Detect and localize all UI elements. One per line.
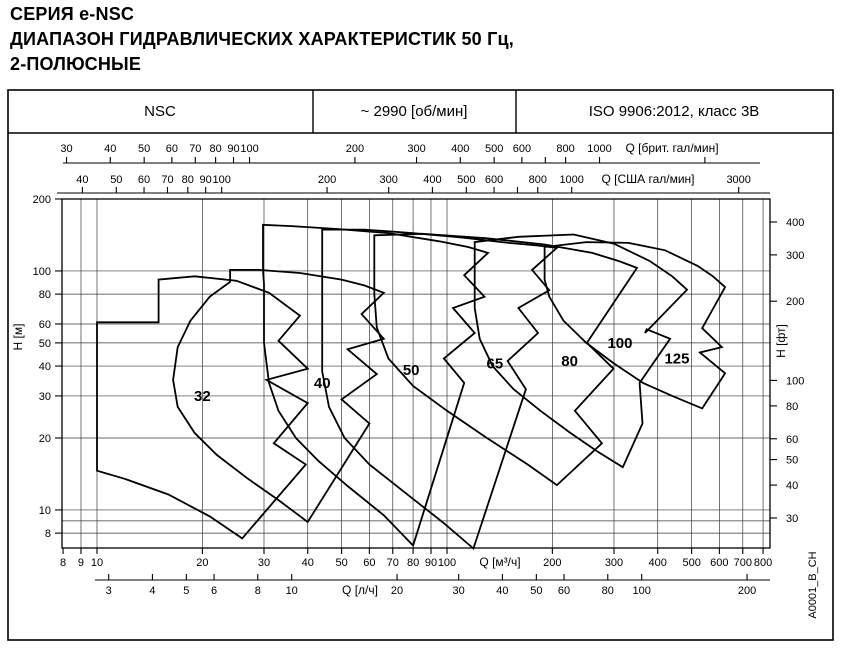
hydraulic-range-chart: NSC ~ 2990 [об/мин] ISO 9906:2012, класс…	[0, 0, 841, 648]
ls-tick-label: 3	[106, 585, 112, 597]
h-m-tick-label: 30	[39, 391, 51, 403]
us-gpm-tick-label: 500	[457, 174, 475, 186]
imp-gpm-tick-label: 300	[407, 143, 425, 155]
us-gpm-tick-label: 1000	[559, 174, 583, 186]
pump-range-label-100: 100	[607, 335, 632, 352]
m3h-tick-label: 80	[407, 557, 419, 569]
imp-gpm-tick-label: 60	[166, 143, 178, 155]
h-ft-tick-label: 50	[786, 455, 798, 467]
m3h-tick-label: 90	[425, 557, 437, 569]
ls-tick-label: 8	[255, 585, 261, 597]
ls-tick-label: 6	[211, 585, 217, 597]
ls-axis-title: Q [л/ч]	[342, 583, 378, 597]
us-gpm-tick-label: 800	[529, 174, 547, 186]
m3h-tick-label: 20	[196, 557, 208, 569]
pump-range-label-80: 80	[561, 353, 578, 370]
us-gpm-tick-label: 60	[138, 174, 150, 186]
imp-gpm-tick-label: 90	[227, 143, 239, 155]
imp-gpm-tick-label: 800	[556, 143, 574, 155]
h-m-tick-label: 60	[39, 319, 51, 331]
m3h-tick-label: 70	[387, 557, 399, 569]
h-ft-tick-label: 400	[786, 217, 804, 229]
ls-tick-label: 10	[286, 585, 298, 597]
m3h-tick-label: 700	[734, 557, 752, 569]
drawing-code-note: A0001_B_CH	[807, 551, 819, 618]
ls-tick-label: 20	[391, 585, 403, 597]
h-ft-tick-label: 300	[786, 250, 804, 262]
us-gpm-tick-label: 70	[161, 174, 173, 186]
header-series: NSC	[144, 103, 176, 120]
us-gpm-tick-label: 200	[318, 174, 336, 186]
header-speed: ~ 2990 [об/мин]	[361, 103, 468, 120]
imp-gpm-tick-label: 50	[138, 143, 150, 155]
imp-gpm-tick-label: 400	[451, 143, 469, 155]
imp-gpm-tick-label: 80	[209, 143, 221, 155]
h-m-tick-label: 50	[39, 338, 51, 350]
us-gpm-tick-label: 400	[423, 174, 441, 186]
pump-range-100	[475, 235, 687, 468]
imp-gpm-tick-label: 500	[485, 143, 503, 155]
left-axis-title: H [м]	[11, 324, 25, 351]
m3h-tick-label: 500	[682, 557, 700, 569]
h-m-tick-label: 200	[33, 194, 51, 206]
h-ft-tick-label: 80	[786, 401, 798, 413]
imp-gpm-tick-label: 40	[104, 143, 116, 155]
imp-gpm-axis-title: Q [брит. гал/мин]	[625, 141, 718, 155]
us-gpm-tick-label: 3000	[726, 174, 750, 186]
ls-tick-label: 4	[149, 585, 155, 597]
m3h-tick-label: 40	[302, 557, 314, 569]
h-ft-tick-label: 30	[786, 513, 798, 525]
us-gpm-tick-label: 50	[110, 174, 122, 186]
h-ft-tick-label: 100	[786, 375, 804, 387]
us-gpm-axis-title: Q [США гал/мин]	[601, 172, 694, 186]
ls-tick-label: 80	[602, 585, 614, 597]
m3h-axis-title: Q [м³/ч]	[479, 555, 520, 569]
m3h-tick-label: 400	[649, 557, 667, 569]
m3h-tick-label: 300	[605, 557, 623, 569]
m3h-tick-label: 8	[60, 557, 66, 569]
imp-gpm-tick-label: 1000	[587, 143, 611, 155]
h-ft-tick-label: 60	[786, 434, 798, 446]
m3h-tick-label: 60	[363, 557, 375, 569]
ls-tick-label: 5	[183, 585, 189, 597]
h-ft-tick-label: 40	[786, 480, 798, 492]
ls-tick-label: 30	[453, 585, 465, 597]
ls-tick-label: 60	[558, 585, 570, 597]
m3h-tick-label: 600	[710, 557, 728, 569]
ls-tick-label: 50	[530, 585, 542, 597]
us-gpm-tick-label: 100	[213, 174, 231, 186]
h-m-tick-label: 100	[33, 266, 51, 278]
imp-gpm-tick-label: 70	[189, 143, 201, 155]
page: СЕРИЯ e-NSC ДИАПАЗОН ГИДРАВЛИЧЕСКИХ ХАРА…	[0, 0, 841, 648]
title-line-1: СЕРИЯ e-NSC	[10, 2, 514, 27]
m3h-tick-label: 10	[91, 557, 103, 569]
h-m-tick-label: 8	[45, 528, 51, 540]
us-gpm-tick-label: 300	[380, 174, 398, 186]
h-m-tick-label: 40	[39, 361, 51, 373]
pump-range-label-125: 125	[664, 351, 689, 368]
h-ft-tick-label: 200	[786, 296, 804, 308]
imp-gpm-tick-label: 200	[346, 143, 364, 155]
m3h-tick-label: 9	[78, 557, 84, 569]
imp-gpm-tick-label: 100	[240, 143, 258, 155]
pump-range-80	[374, 234, 637, 485]
title-line-3: 2-ПОЛЮСНЫЕ	[10, 52, 514, 77]
us-gpm-tick-label: 600	[485, 174, 503, 186]
chart-generated: 304050607080901002003004005006008001000Q…	[33, 141, 805, 597]
m3h-tick-label: 50	[336, 557, 348, 569]
h-m-tick-label: 80	[39, 289, 51, 301]
imp-gpm-tick-label: 600	[513, 143, 531, 155]
imp-gpm-tick-label: 30	[60, 143, 72, 155]
title-line-2: ДИАПАЗОН ГИДРАВЛИЧЕСКИХ ХАРАКТЕРИСТИК 50…	[10, 27, 514, 52]
m3h-tick-label: 800	[754, 557, 772, 569]
us-gpm-tick-label: 90	[200, 174, 212, 186]
m3h-tick-label: 200	[543, 557, 561, 569]
m3h-tick-label: 30	[258, 557, 270, 569]
h-m-tick-label: 10	[39, 505, 51, 517]
m3h-tick-label: 100	[438, 557, 456, 569]
us-gpm-tick-label: 80	[182, 174, 194, 186]
header-standard: ISO 9906:2012, класс 3В	[589, 103, 760, 120]
ls-tick-label: 100	[633, 585, 651, 597]
ls-tick-label: 40	[496, 585, 508, 597]
ls-tick-label: 200	[738, 585, 756, 597]
h-m-tick-label: 20	[39, 433, 51, 445]
right-axis-title: H [фт]	[774, 324, 788, 358]
page-title: СЕРИЯ e-NSC ДИАПАЗОН ГИДРАВЛИЧЕСКИХ ХАРА…	[10, 2, 514, 77]
pump-range-label-40: 40	[314, 375, 331, 392]
us-gpm-tick-label: 40	[76, 174, 88, 186]
pump-range-label-32: 32	[194, 388, 211, 405]
